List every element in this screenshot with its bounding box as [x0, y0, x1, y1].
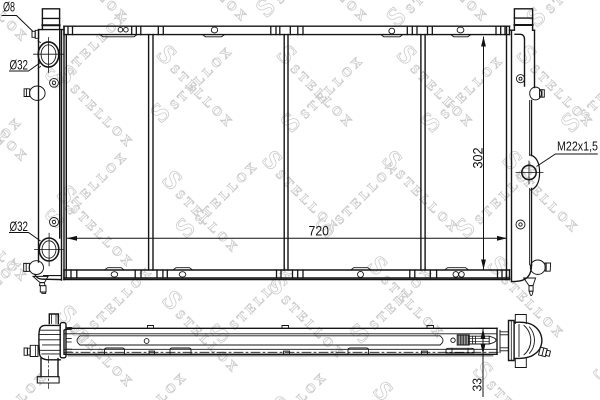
svg-text:302: 302 [470, 147, 486, 168]
svg-text:33: 33 [470, 378, 485, 392]
svg-text:Ø8: Ø8 [3, 0, 15, 15]
svg-text:Ø32: Ø32 [10, 218, 29, 234]
svg-text:Ø32: Ø32 [10, 56, 29, 72]
svg-text:720: 720 [309, 222, 330, 238]
svg-text:M22x1,5: M22x1,5 [557, 138, 598, 153]
